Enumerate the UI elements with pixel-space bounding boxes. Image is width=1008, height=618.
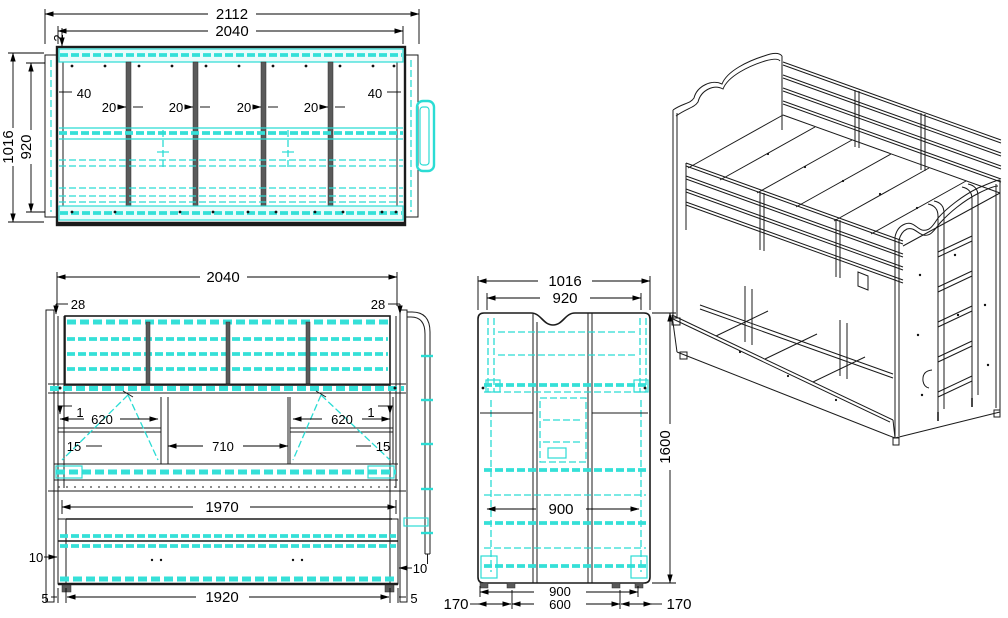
dim-top-divider-2: 20 (169, 100, 183, 115)
dim-front-corner-left: 28 (71, 297, 85, 312)
front-view-geometry (46, 310, 433, 602)
dim-top-overall-depth: 1016 (0, 130, 17, 163)
dim-front-shelf-offset-right: 1 (367, 405, 374, 420)
dim-side-foot-inset-right: 170 (666, 596, 691, 613)
dim-front-trundle-end-right: 5 (410, 591, 417, 606)
side-view-geometry (478, 313, 650, 588)
dim-side-inner-clear-width: 900 (548, 501, 573, 518)
iso-ladder-hook (923, 370, 932, 388)
iso-front-guard-rail (686, 163, 903, 283)
isometric-view (672, 53, 1001, 445)
top-view: 2112 2040 2 1016 920 40 40 20 (0, 6, 434, 225)
dim-front-shelf-right: 620 (331, 412, 353, 427)
dim-top-divider-1: 20 (102, 100, 116, 115)
dim-top-divider-3: 20 (237, 100, 251, 115)
trundle-handle (417, 101, 434, 171)
screw-dots-top (71, 65, 396, 68)
dim-front-gap-right: 15 (376, 439, 390, 454)
dim-side-inner-width: 920 (552, 290, 577, 307)
technical-drawing-canvas: 2112 2040 2 1016 920 40 40 20 (0, 0, 1008, 618)
caster-right (385, 585, 394, 592)
side-view: 1016 920 1600 900 900 600 170 (443, 273, 691, 613)
drawing-svg: 2112 2040 2 1016 920 40 40 20 (0, 0, 1008, 618)
dim-side-overall-width: 1016 (548, 273, 581, 290)
top-view-geometry (45, 47, 434, 225)
dim-front-shelf-offset-left: 1 (76, 405, 83, 420)
dim-front-inner-length: 2040 (206, 269, 239, 286)
dim-top-end-left: 40 (77, 86, 91, 101)
dim-side-overall-height: 1600 (657, 430, 674, 463)
dim-top-overall-length: 2112 (216, 6, 248, 23)
dim-side-foot-inset-left: 170 (443, 596, 468, 613)
dim-top-divider-4: 20 (304, 100, 318, 115)
dim-front-trundle-end-left: 5 (41, 591, 48, 606)
dim-front-gap-left: 15 (67, 439, 81, 454)
dim-top-panel-offset: 2 (51, 34, 66, 41)
dim-front-desk-opening: 710 (212, 439, 234, 454)
iso-back-guard-rail (783, 62, 1001, 182)
dim-front-trundle-opening: 1970 (205, 499, 238, 516)
dim-side-foot-inner-span: 600 (549, 597, 571, 612)
front-view: 2040 28 28 1 1 620 620 15 15 (29, 269, 433, 606)
ladder-side-profile (404, 312, 433, 564)
iso-lower-frame (700, 272, 893, 379)
dim-front-trundle-side-left: 10 (29, 550, 43, 565)
dim-front-shelf-left: 620 (91, 412, 113, 427)
caster-left (62, 585, 71, 592)
dim-front-trundle-side-right: 10 (413, 561, 427, 576)
iso-headboard (672, 53, 782, 325)
dim-front-corner-right: 28 (371, 297, 385, 312)
dim-top-inner-length: 2040 (215, 23, 248, 40)
iso-trundle (672, 311, 895, 438)
dim-front-trundle-width: 1920 (205, 589, 238, 606)
iso-footboard (893, 180, 1000, 445)
dim-top-inner-depth: 920 (18, 134, 35, 159)
dim-top-end-right: 40 (368, 86, 382, 101)
